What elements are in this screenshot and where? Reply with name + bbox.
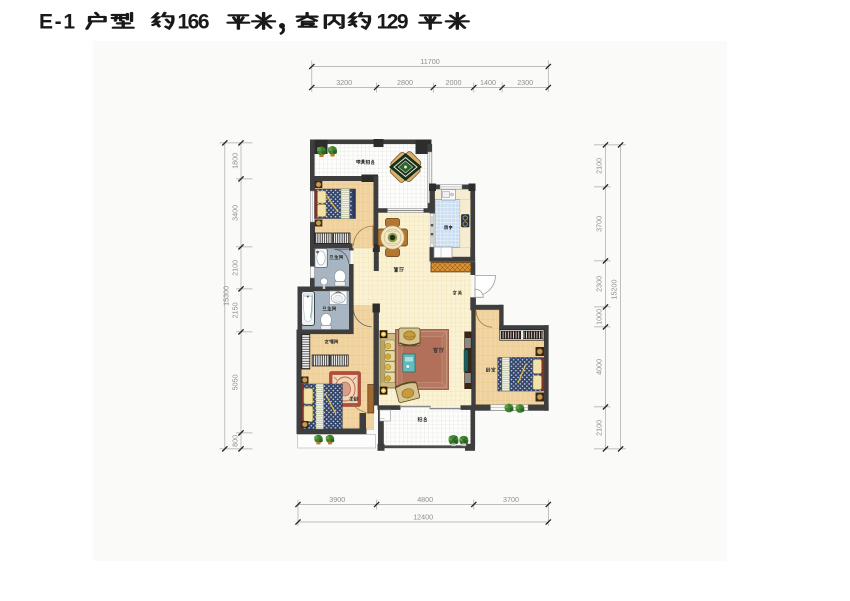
- svg-text:3900: 3900: [329, 495, 345, 504]
- svg-text:2800: 2800: [397, 78, 413, 87]
- svg-text:12400: 12400: [413, 513, 433, 522]
- svg-text:2300: 2300: [517, 78, 533, 87]
- svg-text:3700: 3700: [595, 216, 604, 232]
- svg-text:2100: 2100: [595, 420, 604, 436]
- svg-text:11700: 11700: [420, 57, 439, 66]
- svg-text:5050: 5050: [231, 374, 240, 390]
- svg-text:1000: 1000: [595, 309, 604, 325]
- svg-text:129: 129: [377, 11, 409, 34]
- svg-text:2100: 2100: [231, 260, 240, 276]
- svg-text:800: 800: [231, 435, 240, 447]
- svg-text:1800: 1800: [231, 153, 240, 169]
- svg-text:15200: 15200: [610, 280, 619, 300]
- svg-text:15300: 15300: [222, 286, 231, 306]
- svg-text:166: 166: [178, 11, 210, 34]
- svg-text:4800: 4800: [417, 495, 433, 504]
- svg-text:4000: 4000: [595, 359, 604, 375]
- svg-text:3200: 3200: [336, 78, 352, 87]
- svg-text:3400: 3400: [231, 205, 240, 221]
- svg-text:2150: 2150: [231, 302, 240, 318]
- svg-text:2300: 2300: [595, 276, 604, 292]
- svg-text:2000: 2000: [446, 78, 462, 87]
- svg-text:E-1: E-1: [39, 11, 75, 34]
- svg-text:2100: 2100: [595, 158, 604, 174]
- svg-text:3700: 3700: [503, 495, 519, 504]
- svg-text:1400: 1400: [480, 78, 496, 87]
